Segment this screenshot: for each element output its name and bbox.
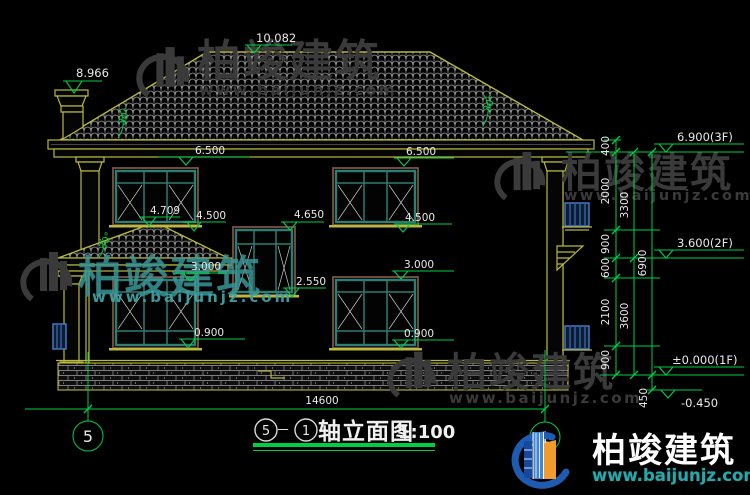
floor-label: -0.450 [681, 396, 718, 410]
title-separator: － [276, 423, 290, 439]
floor-label: 6.900(3F) [677, 130, 733, 144]
marker-1f: ±0.000(1F) [654, 353, 744, 375]
dim-label: 3300 [619, 192, 631, 219]
dim-label: 900 [600, 234, 612, 254]
marker-stair-head: 4.650 [281, 209, 324, 230]
axis-number: 5 [83, 427, 93, 446]
level-label: 6.500 [195, 145, 225, 157]
overall-width-label: 14600 [305, 395, 338, 407]
watermark-logo-icon [497, 152, 542, 198]
level-label: 3.000 [404, 259, 434, 271]
site-logo: 柏竣建筑 www.baijunjz.com [515, 431, 750, 485]
level-label: 4.500 [405, 212, 435, 224]
window-sill [329, 348, 422, 351]
dim-label: 900 [600, 350, 612, 370]
dim-label: 2000 [600, 178, 612, 205]
side-window-left [53, 324, 66, 349]
window-sill [109, 225, 202, 228]
level-label: 4.500 [196, 210, 226, 222]
dim-label: 400 [600, 136, 612, 156]
title-block: 5 － 1 轴立面图 1:100 [253, 418, 455, 451]
level-label: 0.900 [404, 328, 434, 340]
watermark-site: www.baijunjz.com [199, 81, 397, 99]
level-label: 4.709 [150, 205, 180, 217]
elevation-drawing: 柏竣建筑 www.baijunjz.com 柏竣建筑 www.baijunjz.… [0, 0, 750, 495]
watermark-site: www.baijunjz.com [449, 389, 642, 407]
side-window-right-lower [562, 326, 592, 350]
level-label: 0.900 [194, 327, 224, 339]
level-label: 2.550 [296, 276, 326, 288]
title-underline-thick [253, 443, 435, 447]
drawing-scale: 1:100 [398, 422, 455, 443]
side-window-right-upper [562, 203, 592, 230]
floor-label: 3.600(2F) [677, 236, 733, 250]
marker-head1f-right: 3.000 [392, 259, 454, 279]
cad-canvas: 柏竣建筑 www.baijunjz.com 柏竣建筑 www.baijunjz.… [0, 0, 750, 495]
level-label: 6.500 [406, 146, 436, 158]
level-label: 3.000 [191, 261, 221, 273]
dim-label: 2100 [600, 299, 612, 326]
marker-chimney: 8.966 [63, 66, 109, 93]
dim-label: 3600 [619, 303, 631, 330]
marker-grade: -0.450 [646, 390, 718, 410]
title-axis-right: 1 [302, 424, 310, 439]
side-canopy-right [557, 246, 583, 270]
logo-site: www.baijunjz.com [592, 466, 750, 485]
building-elevation [48, 52, 594, 390]
logo-brand: 柏竣建筑 [592, 431, 736, 471]
level-label: 10.082 [256, 31, 296, 45]
level-label: 4.650 [294, 209, 324, 221]
marker-2f: 3.600(2F) [654, 236, 744, 258]
dim-label: 600 [600, 258, 612, 278]
main-eave-fascia [48, 140, 594, 157]
floor-label: ±0.000(1F) [672, 353, 737, 367]
watermark-site: www.baijunjz.com [92, 288, 293, 306]
dim-label: 450 [638, 388, 650, 408]
window-2f-left [109, 168, 202, 228]
watermark-site: www.baijunjz.com [564, 188, 750, 204]
dim-label: 6900 [637, 250, 649, 277]
level-label: 8.966 [76, 66, 109, 80]
title-axis-left: 5 [262, 424, 270, 439]
